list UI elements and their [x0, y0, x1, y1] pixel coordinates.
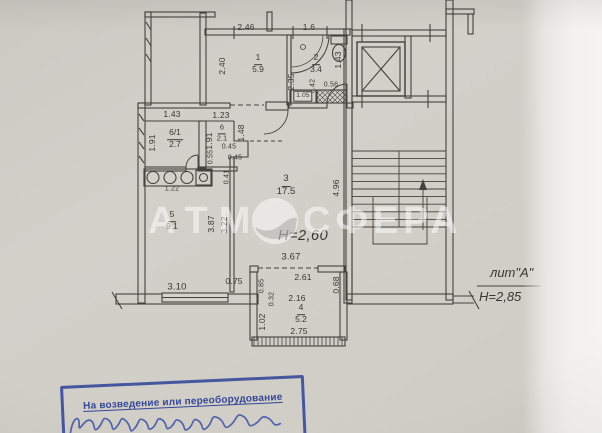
watermark-text: АТМ	[148, 202, 261, 240]
stairwell-height-note: Н=2,85	[479, 289, 521, 304]
page-edge	[522, 0, 602, 433]
dim-label: 0.85	[259, 279, 266, 293]
room-area: 5.2	[295, 315, 307, 325]
floor-plan-photo: 2.46 1.6 2.40 2.35 1.43 0.42 0.56 1.05 1…	[0, 0, 602, 433]
dim-label: 2.40	[218, 57, 227, 74]
stairs-up-arrow	[419, 179, 427, 190]
dim-label: 2.46	[237, 23, 254, 32]
dim-label: 1.22	[165, 186, 179, 193]
dim-label: 2.35	[287, 73, 296, 90]
dim-label: 1.02	[258, 313, 267, 330]
dim-label: 1.43	[163, 110, 180, 119]
dim-label: 1.23	[212, 111, 229, 120]
walls-group	[112, 0, 541, 346]
room-label: 1 5.9	[252, 53, 264, 75]
dim-label: 1.05	[293, 91, 312, 102]
toilet-icon	[331, 36, 347, 44]
dim-label: 3.67	[281, 252, 300, 262]
dim-label: 1.43	[334, 51, 343, 68]
room-number: 3	[281, 174, 290, 187]
dim-label: 0.41	[224, 170, 231, 184]
dim-label: 2.75	[290, 327, 307, 336]
dim-label: 0.75	[225, 277, 242, 286]
building-liter-note: лит"А"	[490, 265, 533, 280]
room-label: 6 2.1	[217, 123, 227, 142]
room-number: 1	[254, 53, 263, 65]
dim-label: 1.91	[148, 134, 157, 151]
dim-label: 0.55	[208, 150, 215, 164]
room-area: 5.9	[252, 65, 264, 75]
dim-label: 2.61	[294, 273, 311, 282]
watermark-logo-icon	[251, 197, 299, 245]
dim-label: 0.68	[332, 276, 341, 293]
room-label: 4 5.2	[295, 303, 307, 325]
dim-label: 0.45	[228, 155, 242, 162]
watermark-text: СФЕРА	[303, 202, 463, 240]
room-label: 6/1 2.7	[167, 128, 183, 150]
dim-label: 0.56	[324, 82, 338, 89]
dim-label: 1.6	[303, 23, 315, 32]
room-number: 2	[312, 53, 321, 65]
dim-label: 4.96	[332, 179, 341, 196]
dim-label: 0.45	[222, 144, 236, 151]
floor-plan-linework	[0, 0, 602, 433]
room-number: 6/1	[167, 128, 183, 140]
room-area: 2.1	[217, 134, 227, 143]
room-label: 3 17.5	[277, 174, 296, 198]
room-area: 3.4	[310, 65, 322, 75]
vent-shaft	[317, 90, 346, 103]
dim-label: 0.32	[269, 292, 276, 306]
dim-label: 1.91	[205, 132, 214, 149]
room-number: 4	[297, 303, 306, 315]
room-label: 2 3.4	[310, 53, 322, 75]
dim-label: 1.48	[237, 124, 246, 141]
room-area: 2.7	[167, 140, 183, 150]
dim-label: 2.16	[288, 294, 305, 303]
dim-label: 3.10	[167, 282, 186, 292]
